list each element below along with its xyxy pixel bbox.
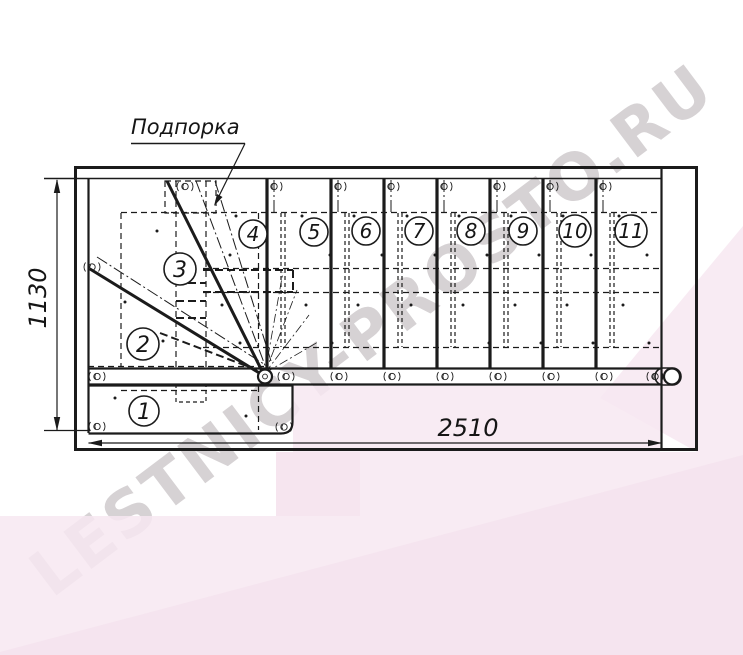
support-label: Подпорка <box>131 115 240 139</box>
support-top-plate <box>165 181 216 213</box>
step-marker-11: 11 <box>615 215 647 247</box>
dimension-height: 1130 <box>24 267 52 328</box>
svg-text:9: 9 <box>517 219 530 243</box>
stair-plan-drawing: LESTNICY-PROSTO.RU <box>0 0 743 655</box>
svg-text:1: 1 <box>137 400 151 425</box>
svg-text:10: 10 <box>562 219 587 243</box>
svg-text:3: 3 <box>173 258 187 283</box>
step-marker-3: 3 <box>164 253 196 285</box>
step-marker-1: 1 <box>129 396 159 426</box>
svg-text:2: 2 <box>136 333 150 358</box>
pink-shape-patch <box>276 452 360 516</box>
step-marker-9: 9 <box>509 217 537 245</box>
step-marker-8: 8 <box>457 217 485 245</box>
svg-text:5: 5 <box>308 220 321 244</box>
svg-text:4: 4 <box>247 222 260 246</box>
callout-arrow <box>214 194 223 206</box>
support-callout: Подпорка <box>131 115 245 206</box>
svg-text:7: 7 <box>413 219 426 243</box>
step-marker-7: 7 <box>405 217 433 245</box>
brace-joint <box>258 370 272 384</box>
svg-text:11: 11 <box>618 219 643 243</box>
step-marker-6: 6 <box>352 217 380 245</box>
step-marker-10: 10 <box>559 215 591 247</box>
staircase-plan-page: LESTNICY-PROSTO.RU <box>0 0 743 655</box>
svg-text:8: 8 <box>465 219 478 243</box>
dimension-width: 2510 <box>437 414 498 442</box>
vertical-dimension: 1130 <box>24 179 90 431</box>
svg-text:6: 6 <box>360 219 373 243</box>
step-marker-4: 4 <box>239 220 267 248</box>
step-marker-2: 2 <box>127 328 159 360</box>
step-marker-5: 5 <box>300 218 328 246</box>
